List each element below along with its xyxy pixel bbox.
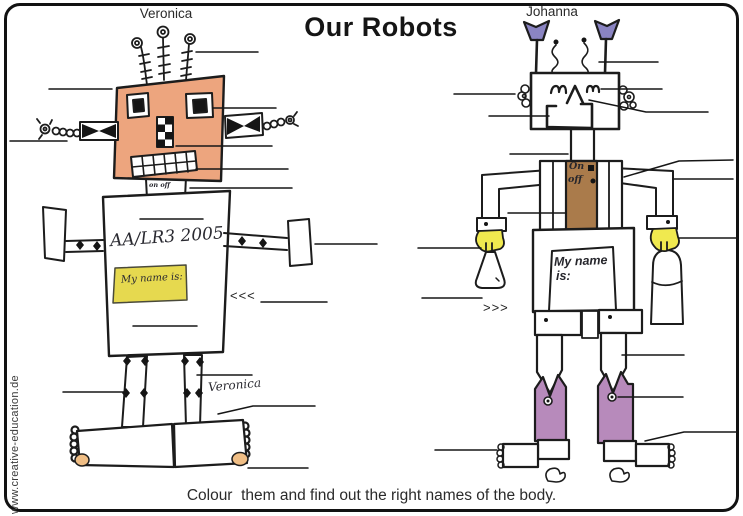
veronica-arm-left xyxy=(43,207,103,261)
veronica-ear-right-icon xyxy=(225,112,298,138)
veronica-toe-left xyxy=(75,454,89,466)
johanna-flask-icon xyxy=(476,252,505,288)
johanna-arm-left xyxy=(477,170,549,231)
robots-drawing xyxy=(0,0,743,516)
veronica-name-label: Veronica xyxy=(120,6,212,21)
johanna-arrow-marks: >>> xyxy=(483,300,509,315)
page-title: Our Robots xyxy=(271,12,491,43)
veronica-feet xyxy=(71,420,250,467)
johanna-barefoot-right-icon xyxy=(610,468,629,482)
johanna-name-label: Johanna xyxy=(506,4,598,19)
veronica-antennae-icon xyxy=(132,27,195,86)
veronica-toe-right xyxy=(232,453,248,466)
johanna-barefoot-left-icon xyxy=(546,468,565,482)
johanna-name-tag-line2: is: xyxy=(556,269,571,283)
johanna-feet xyxy=(497,440,675,482)
worksheet-page: Veronica Johanna Our Robots on off AA/LR… xyxy=(0,0,743,516)
instruction-text: Colour them and find out the right names… xyxy=(0,487,743,505)
veronica-neck-switch-label: on off xyxy=(149,181,170,189)
johanna-legs xyxy=(535,333,633,443)
johanna-switch-off-label: off xyxy=(568,174,582,185)
johanna-switch-on-label: On xyxy=(569,161,584,172)
johanna-hand-right xyxy=(651,228,679,251)
johanna-head xyxy=(531,73,619,129)
answer-line-johanna-right-foot xyxy=(645,432,737,441)
johanna-antennae-icon xyxy=(524,20,619,73)
johanna-ear-left-icon xyxy=(518,85,530,107)
johanna-name-tag-line1: My name xyxy=(554,253,608,269)
watermark-url: www.creative-education.de xyxy=(9,375,21,514)
veronica-nose-icon xyxy=(157,117,173,147)
veronica-arm-right xyxy=(224,219,312,266)
johanna-bottle-icon xyxy=(651,250,683,324)
johanna-body xyxy=(533,228,634,312)
answer-line-veronica-foot xyxy=(218,406,315,414)
veronica-arrow-marks: <<< xyxy=(230,288,256,303)
veronica-ear-left-icon xyxy=(37,119,118,140)
johanna-neck xyxy=(571,128,594,163)
veronica-robot xyxy=(37,27,312,468)
veronica-legs xyxy=(122,355,204,427)
